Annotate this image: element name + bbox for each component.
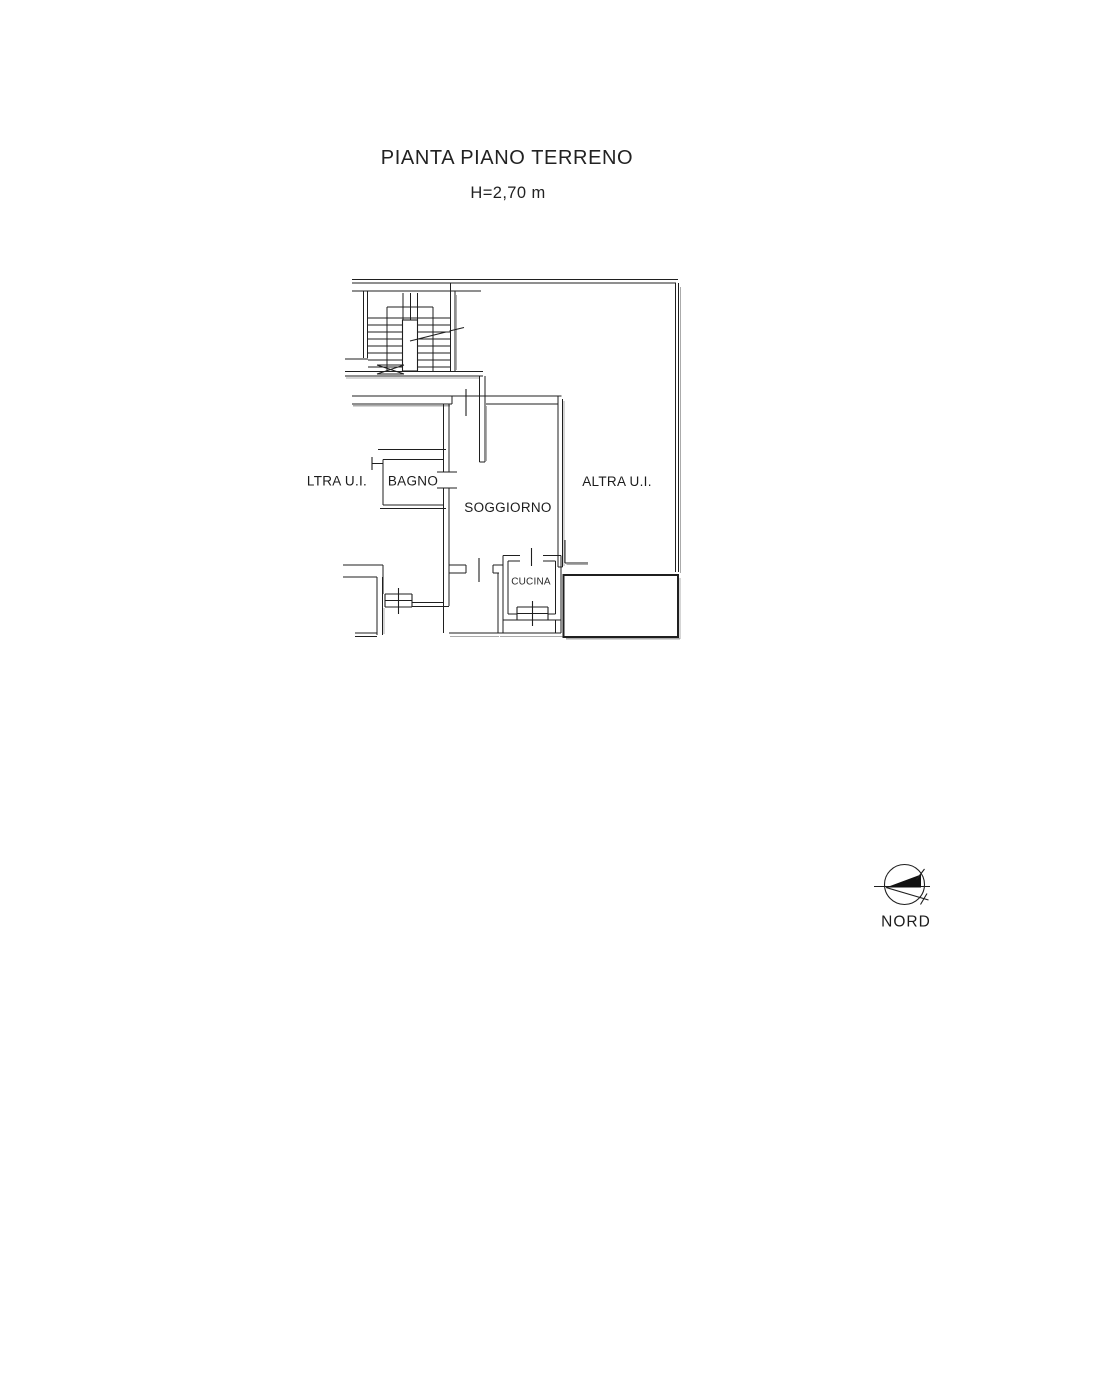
cucina-window-symbol bbox=[517, 601, 548, 626]
right-stub-wall bbox=[565, 540, 588, 565]
room-label-ltra-ui: LTRA U.I. bbox=[307, 474, 367, 489]
room-label-altra-ui: ALTRA U.I. bbox=[582, 474, 652, 489]
room-cucina-walls bbox=[498, 556, 563, 637]
bagno-door-symbol bbox=[437, 472, 457, 488]
soggiorno-bottom-wall bbox=[449, 565, 503, 573]
room-label-soggiorno: SOGGIORNO bbox=[464, 500, 551, 515]
soggiorno-right-wall bbox=[558, 396, 564, 567]
floor-plan: LTRA U.I. BAGNO SOGGIORNO ALTRA U.I. CUC… bbox=[0, 0, 1118, 1398]
left-window-symbol bbox=[385, 588, 412, 614]
north-compass: NORD bbox=[874, 865, 931, 931]
stair-hatch-detail bbox=[377, 365, 404, 374]
terrace-block bbox=[564, 575, 681, 639]
outer-walls bbox=[352, 280, 681, 574]
stairwell bbox=[345, 283, 483, 378]
room-label-cucina: CUCINA bbox=[511, 577, 551, 588]
left-unit-walls bbox=[343, 565, 384, 637]
north-label: NORD bbox=[881, 914, 931, 931]
north-arrow-icon bbox=[886, 875, 921, 888]
room-label-bagno: BAGNO bbox=[388, 474, 438, 489]
room-bagno-walls bbox=[378, 404, 449, 633]
page-canvas: PIANTA PIANO TERRENO H=2,70 m bbox=[0, 0, 1118, 1398]
center-terrace-walls bbox=[412, 603, 499, 637]
stair-newel bbox=[403, 320, 418, 371]
bagno-window-symbol bbox=[372, 457, 383, 470]
